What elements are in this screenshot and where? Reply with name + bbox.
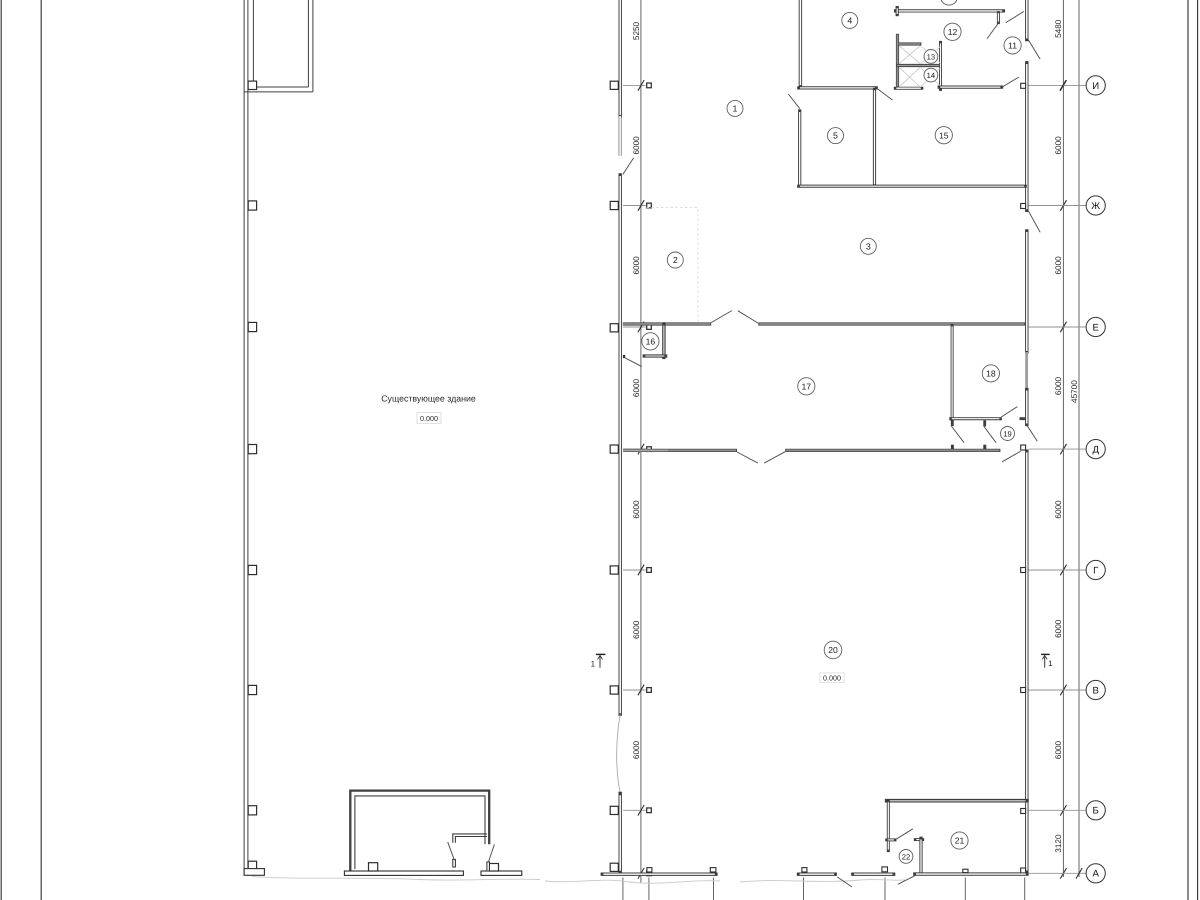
svg-text:19: 19 xyxy=(1003,430,1011,439)
svg-text:0.000: 0.000 xyxy=(420,414,438,423)
svg-text:Б: Б xyxy=(1093,806,1099,817)
svg-text:6000: 6000 xyxy=(632,500,641,519)
svg-text:Ж: Ж xyxy=(1091,201,1100,212)
svg-text:0.000: 0.000 xyxy=(823,674,841,683)
svg-text:3120: 3120 xyxy=(1054,834,1063,853)
svg-text:12: 12 xyxy=(948,27,958,37)
svg-text:15: 15 xyxy=(939,130,949,140)
svg-text:6000: 6000 xyxy=(1054,376,1063,395)
svg-text:4: 4 xyxy=(847,16,852,26)
svg-text:13: 13 xyxy=(927,53,935,62)
svg-text:5: 5 xyxy=(833,131,838,141)
svg-text:6000: 6000 xyxy=(632,136,641,155)
svg-text:2: 2 xyxy=(673,255,678,265)
svg-text:5480: 5480 xyxy=(1054,19,1063,38)
svg-text:6000: 6000 xyxy=(1054,256,1063,275)
svg-text:45700: 45700 xyxy=(1070,380,1079,403)
svg-text:17: 17 xyxy=(802,381,812,391)
svg-text:3: 3 xyxy=(866,241,871,251)
svg-text:22: 22 xyxy=(902,853,910,862)
svg-text:И: И xyxy=(1092,81,1099,92)
svg-text:Е: Е xyxy=(1092,322,1098,333)
svg-text:1: 1 xyxy=(1048,659,1053,668)
svg-text:Д: Д xyxy=(1092,445,1099,456)
svg-text:А: А xyxy=(1092,869,1099,880)
svg-text:Г: Г xyxy=(1093,565,1099,576)
svg-text:21: 21 xyxy=(955,836,965,846)
svg-text:20: 20 xyxy=(828,645,838,655)
svg-text:6000: 6000 xyxy=(632,620,641,639)
svg-text:11: 11 xyxy=(1008,41,1017,51)
svg-text:6000: 6000 xyxy=(632,378,641,397)
svg-text:1: 1 xyxy=(591,659,596,668)
svg-text:6000: 6000 xyxy=(1054,740,1063,759)
svg-text:Существующее здание: Существующее здание xyxy=(381,394,476,404)
svg-text:16: 16 xyxy=(646,336,656,346)
svg-text:6000: 6000 xyxy=(1054,500,1063,519)
svg-text:6000: 6000 xyxy=(632,740,641,759)
svg-text:6000: 6000 xyxy=(632,256,641,275)
svg-text:В: В xyxy=(1092,685,1098,696)
svg-text:6000: 6000 xyxy=(1054,619,1063,638)
svg-text:14: 14 xyxy=(927,71,935,80)
svg-text:18: 18 xyxy=(986,369,996,379)
svg-text:1: 1 xyxy=(733,104,738,114)
svg-text:5250: 5250 xyxy=(632,21,641,40)
svg-text:6000: 6000 xyxy=(1054,136,1063,155)
